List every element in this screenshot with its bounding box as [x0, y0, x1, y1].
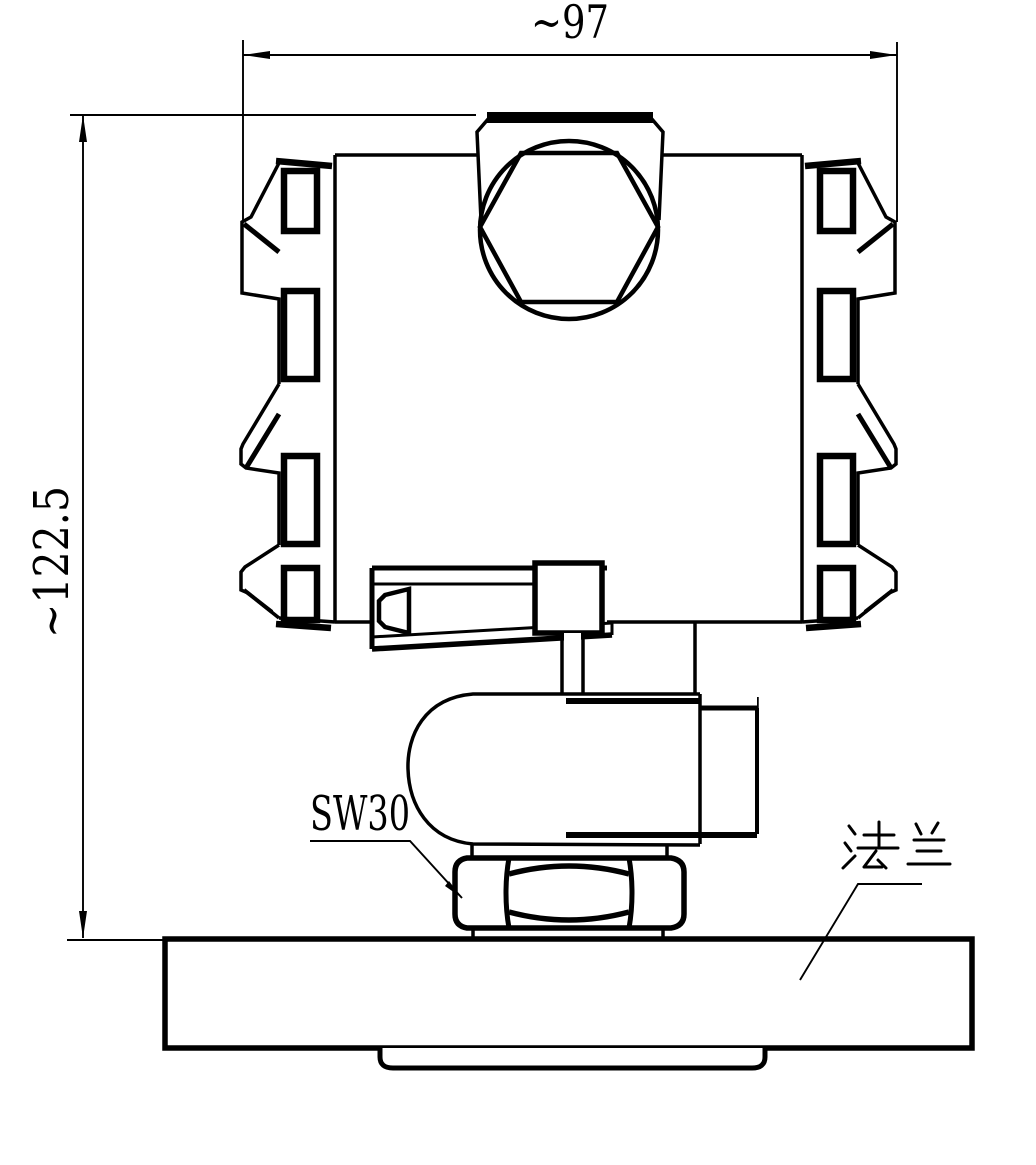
sensor-capsule — [408, 694, 757, 845]
rib-block — [284, 171, 317, 231]
width-dimension: ~97 — [243, 0, 897, 222]
drawing-sheet: ~97 ~122.5 SW30 — [0, 0, 1036, 1165]
hex-nut — [455, 845, 684, 940]
transmitter-housing — [241, 112, 896, 628]
technical-drawing: ~97 ~122.5 SW30 — [0, 0, 1036, 1165]
flange-plate — [165, 939, 972, 1068]
rib-block — [284, 456, 317, 544]
cover-ribs-right — [802, 161, 896, 628]
cap-boss-circle — [480, 141, 658, 319]
bracket-block — [535, 563, 602, 633]
bracket-pocket — [379, 589, 409, 633]
arrowhead-left — [243, 51, 270, 59]
flange-spigot — [380, 1048, 765, 1068]
arrowhead-right — [870, 51, 897, 59]
flange-label-char-fa — [843, 822, 898, 868]
rib-block — [284, 568, 317, 620]
top-cap — [477, 112, 663, 319]
wrench-size-text: SW30 — [310, 786, 410, 842]
leader-line — [310, 841, 462, 898]
height-dimension-text: ~122.5 — [24, 486, 80, 638]
cover-ribs-left — [241, 161, 335, 628]
arrowhead-top — [79, 115, 87, 142]
cap-top-bar — [487, 112, 653, 123]
rib-block — [284, 291, 317, 379]
hex-plug — [480, 153, 658, 302]
flange-label-char-lan — [908, 823, 950, 864]
width-dimension-text: ~97 — [531, 0, 609, 49]
arrowhead-bottom — [79, 911, 87, 938]
